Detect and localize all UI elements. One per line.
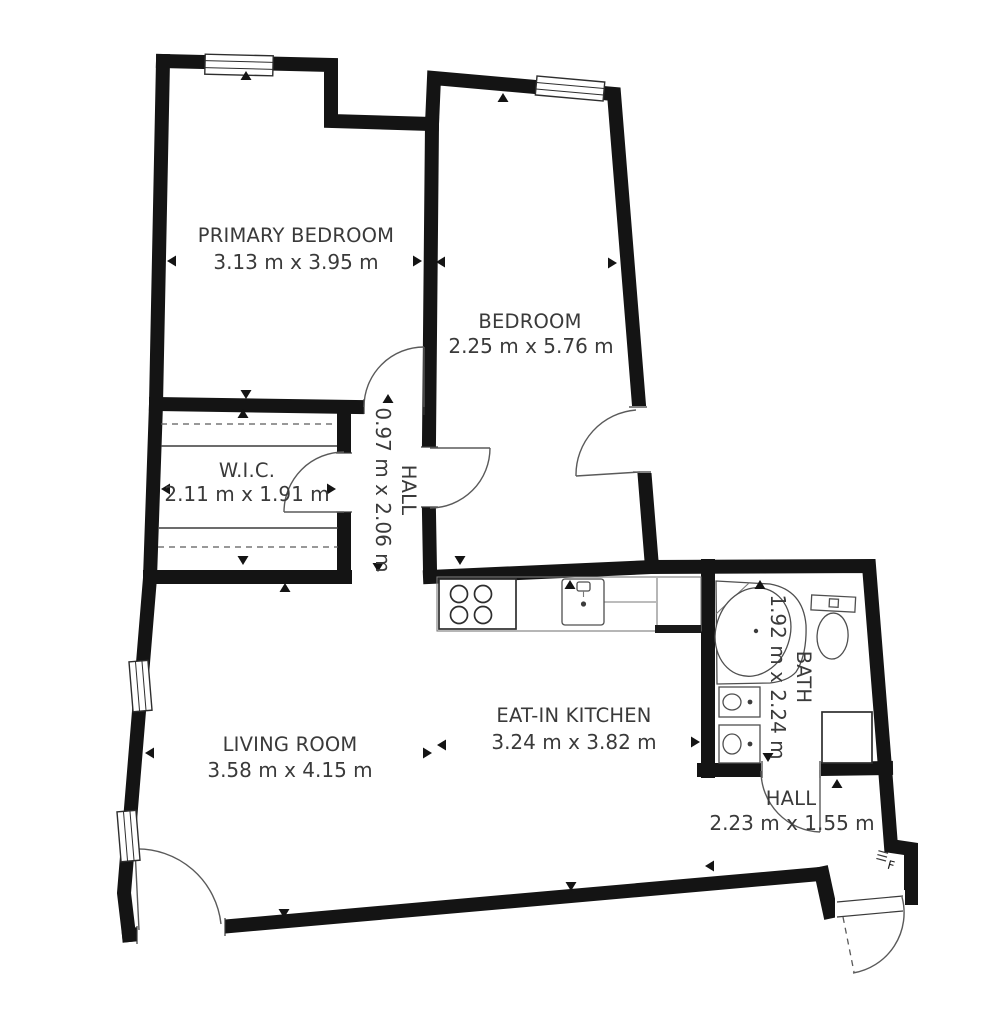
door-opening xyxy=(336,453,352,512)
room-label-primary-bedroom: PRIMARY BEDROOM 3.13 m x 3.95 m xyxy=(198,224,394,274)
stove-icon xyxy=(439,579,516,629)
dimension-arrow xyxy=(705,861,714,872)
room-dimensions: 3.13 m x 3.95 m xyxy=(213,250,378,274)
room-dimensions: 3.58 m x 4.15 m xyxy=(207,758,372,782)
room-label-bath: BATH 1.92 m x 2.24 m xyxy=(766,594,815,759)
dimension-arrow xyxy=(608,258,617,269)
wall-segment xyxy=(430,567,652,577)
wall-segment xyxy=(124,61,163,935)
room-label-hall-entry: HALL 2.23 m x 1.55 m xyxy=(709,787,874,835)
dimension-arrow xyxy=(167,256,176,267)
room-name: BATH xyxy=(792,651,815,704)
room-name: EAT-IN KITCHEN xyxy=(496,704,651,727)
room-name: PRIMARY BEDROOM xyxy=(198,224,394,247)
dimension-arrow xyxy=(437,740,446,751)
room-name: LIVING ROOM xyxy=(223,733,358,756)
dimension-arrow xyxy=(423,748,432,759)
door-swing-icon xyxy=(364,347,424,407)
counter-end-panel xyxy=(655,625,701,633)
room-dimensions: 2.11 m x 1.91 m xyxy=(164,482,329,506)
wall-segment xyxy=(156,404,357,407)
dimension-arrow xyxy=(383,394,394,403)
door-swing-icon xyxy=(135,849,221,930)
room-label-living-room: LIVING ROOM 3.58 m x 4.15 m xyxy=(207,733,372,782)
room-dimensions: 2.25 m x 5.76 m xyxy=(448,334,613,358)
window-icon xyxy=(129,660,152,711)
door-opening xyxy=(761,761,821,778)
door-swing-icon xyxy=(430,448,490,508)
entry-mark-label: F xyxy=(886,858,896,873)
dimension-arrow xyxy=(832,779,843,788)
window-icon xyxy=(535,76,604,101)
wall-segment xyxy=(822,874,830,911)
room-dimensions: 0.97 m x 2.06 m xyxy=(371,407,395,572)
wall-segment xyxy=(429,514,430,570)
dimension-arrow xyxy=(241,390,252,399)
room-label-hall-upper: HALL 0.97 m x 2.06 m xyxy=(371,407,420,572)
dimension-arrow xyxy=(280,583,291,592)
door-opening xyxy=(421,447,438,507)
dimension-arrow xyxy=(498,93,509,102)
dimension-arrow xyxy=(238,556,249,565)
floor-plan: F PRIMARY BEDROOM 3.13 m x 3.95 m BEDROO… xyxy=(0,0,1000,1022)
wall-segment xyxy=(129,874,820,935)
room-labels: PRIMARY BEDROOM 3.13 m x 3.95 m BEDROOM … xyxy=(164,224,874,835)
dimension-arrow xyxy=(691,737,700,748)
room-dimensions: 2.23 m x 1.55 m xyxy=(709,811,874,835)
dimension-arrow xyxy=(145,748,154,759)
floorplan-svg: F PRIMARY BEDROOM 3.13 m x 3.95 m BEDROO… xyxy=(0,0,1000,1022)
vanity-sink-icon xyxy=(719,687,760,717)
vanity-sink-icon xyxy=(719,725,760,763)
room-name: BEDROOM xyxy=(478,310,581,333)
wall-segment xyxy=(429,124,432,440)
room-name: HALL xyxy=(397,465,420,516)
shower-icon xyxy=(822,712,872,763)
door-opening xyxy=(629,406,652,473)
door-opening xyxy=(137,918,225,943)
room-label-eat-in-kitchen: EAT-IN KITCHEN 3.24 m x 3.82 m xyxy=(491,704,656,754)
room-name: HALL xyxy=(766,787,817,810)
dimension-arrow xyxy=(413,256,422,267)
room-dimensions: 1.92 m x 2.24 m xyxy=(766,594,790,759)
dimension-arrow xyxy=(455,556,466,565)
entry-mark: F xyxy=(874,851,898,873)
window-icon xyxy=(117,810,140,861)
room-dimensions: 3.24 m x 3.82 m xyxy=(491,730,656,754)
room-name: W.I.C. xyxy=(219,459,275,482)
room-label-bedroom: BEDROOM 2.25 m x 5.76 m xyxy=(448,310,613,358)
window-icon xyxy=(205,54,273,76)
wall-segment xyxy=(820,768,886,769)
